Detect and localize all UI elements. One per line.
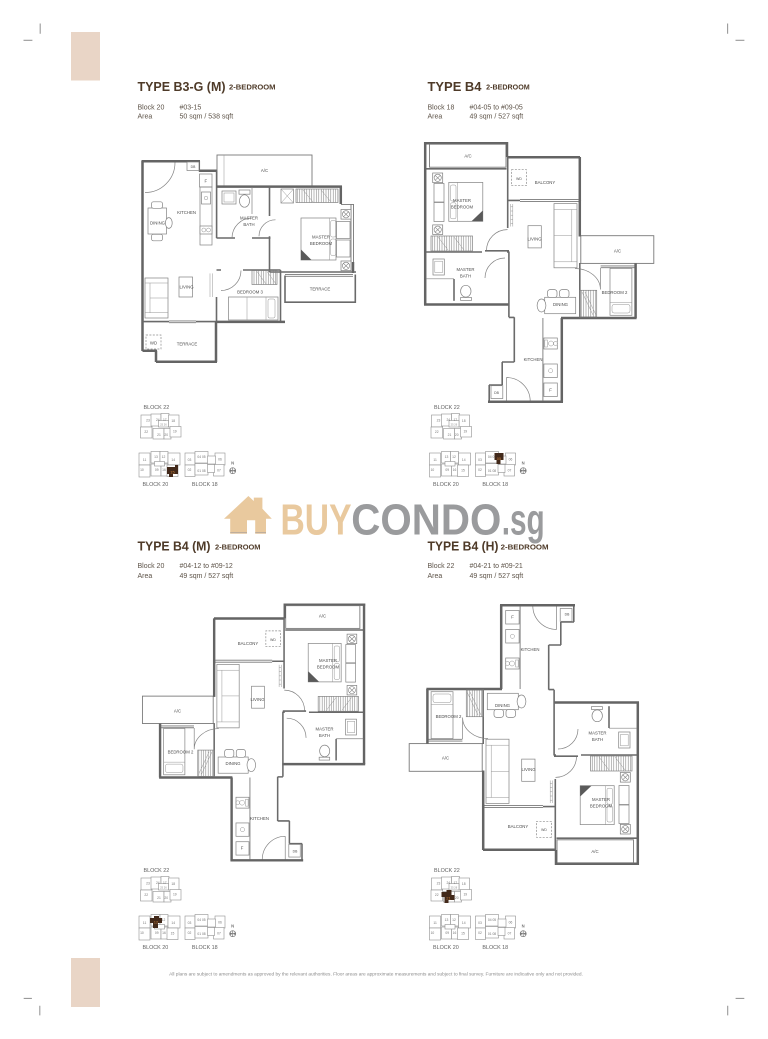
svg-text:LIVING: LIVING — [527, 237, 542, 242]
svg-text:BEDROOM: BEDROOM — [317, 665, 340, 670]
svg-text:BATH: BATH — [319, 733, 330, 738]
svg-text:MASTER: MASTER — [592, 797, 610, 802]
svg-text:MASTER: MASTER — [457, 267, 475, 272]
svg-text:.sg: .sg — [502, 495, 545, 544]
svg-text:BEDROOM: BEDROOM — [310, 241, 333, 246]
svg-text:WD: WD — [150, 341, 157, 346]
svg-text:DINING: DINING — [150, 221, 166, 226]
svg-text:TYPE B3-G (M): TYPE B3-G (M) — [138, 80, 226, 94]
svg-text:F: F — [511, 615, 514, 620]
svg-text:Block 22: Block 22 — [428, 563, 455, 570]
svg-text:BATH: BATH — [592, 737, 603, 742]
svg-text:21: 21 — [446, 896, 451, 901]
svg-text:Area: Area — [428, 114, 443, 121]
svg-text:BEDROOM: BEDROOM — [451, 205, 474, 210]
svg-text:#04-05 to #09-05: #04-05 to #09-05 — [470, 105, 523, 112]
svg-text:BEDROOM 2: BEDROOM 2 — [436, 714, 462, 719]
svg-text:Area: Area — [138, 573, 153, 580]
svg-text:LIVING: LIVING — [179, 285, 194, 290]
svg-text:15: 15 — [170, 470, 175, 475]
svg-text:DINING: DINING — [225, 761, 241, 766]
svg-text:TERRACE: TERRACE — [310, 287, 331, 292]
svg-text:LIVING: LIVING — [250, 697, 265, 702]
svg-text:KITCHEN: KITCHEN — [177, 210, 196, 215]
svg-text:KITCHEN: KITCHEN — [250, 816, 269, 821]
svg-text:DB: DB — [494, 391, 499, 395]
svg-text:TYPE B4: TYPE B4 — [428, 80, 482, 94]
svg-text:MASTER: MASTER — [312, 235, 330, 240]
svg-text:49 sqm / 527 sqft: 49 sqm / 527 sqft — [180, 573, 234, 580]
svg-text:A/C: A/C — [591, 849, 598, 854]
svg-text:BEDROOM 3: BEDROOM 3 — [237, 290, 263, 295]
svg-text:BEDROOM 2: BEDROOM 2 — [602, 290, 628, 295]
svg-text:A/C: A/C — [442, 756, 449, 761]
svg-text:A/C: A/C — [319, 614, 326, 619]
svg-text:#04-21 to #09-21: #04-21 to #09-21 — [470, 563, 523, 570]
svg-text:BALCONY: BALCONY — [238, 641, 259, 646]
svg-text:DINING: DINING — [553, 302, 569, 307]
svg-text:2-BEDROOM: 2-BEDROOM — [229, 84, 276, 91]
svg-text:DB: DB — [293, 850, 298, 854]
svg-text:DB: DB — [191, 165, 196, 169]
svg-text:A/C: A/C — [464, 154, 471, 159]
svg-text:WD: WD — [541, 828, 547, 832]
svg-text:#03-15: #03-15 — [180, 105, 202, 112]
svg-text:F: F — [204, 179, 207, 184]
svg-text:50 sqm / 538 sqft: 50 sqm / 538 sqft — [180, 114, 234, 121]
svg-text:A/C: A/C — [261, 168, 268, 173]
svg-text:2-BEDROOM: 2-BEDROOM — [501, 545, 549, 552]
svg-text:05: 05 — [497, 456, 502, 461]
svg-text:BALCONY: BALCONY — [508, 824, 529, 829]
svg-text:MASTER: MASTER — [319, 658, 337, 663]
svg-text:TYPE B4 (M): TYPE B4 (M) — [138, 540, 211, 554]
svg-text:WD: WD — [270, 638, 276, 642]
svg-text:2-BEDROOM: 2-BEDROOM — [215, 545, 261, 552]
svg-text:BATH: BATH — [460, 274, 471, 279]
svg-text:F: F — [549, 388, 552, 393]
svg-text:A/C: A/C — [614, 249, 621, 254]
svg-text:WD: WD — [516, 177, 522, 181]
svg-text:Area: Area — [138, 114, 153, 121]
svg-text:MASTER: MASTER — [240, 216, 258, 221]
svg-text:KITCHEN: KITCHEN — [524, 357, 543, 362]
svg-text:49 sqm / 527 sqft: 49 sqm / 527 sqft — [470, 114, 524, 121]
svg-text:Block 20: Block 20 — [138, 563, 165, 570]
svg-text:BUY: BUY — [281, 495, 352, 544]
svg-text:2-BEDROOM: 2-BEDROOM — [486, 84, 530, 91]
svg-text:12: 12 — [154, 920, 159, 925]
svg-text:Block 20: Block 20 — [138, 105, 165, 112]
svg-text:DINING: DINING — [495, 703, 511, 708]
svg-text:A/C: A/C — [174, 709, 181, 714]
svg-text:TERRACE: TERRACE — [177, 342, 198, 347]
svg-text:MASTER: MASTER — [589, 731, 607, 736]
svg-text:BEDROOM 2: BEDROOM 2 — [168, 750, 194, 755]
svg-text:CONDO: CONDO — [351, 495, 501, 544]
svg-text:LIVING: LIVING — [521, 767, 536, 772]
svg-text:49 sqm / 527 sqft: 49 sqm / 527 sqft — [470, 573, 524, 580]
svg-text:Block 18: Block 18 — [428, 105, 455, 112]
svg-text:Area: Area — [428, 573, 443, 580]
svg-text:BALCONY: BALCONY — [535, 180, 556, 185]
svg-text:All plans are subject to amend: All plans are subject to amendments as a… — [169, 972, 583, 978]
svg-text:#04-12 to #09-12: #04-12 to #09-12 — [180, 563, 233, 570]
svg-text:BEDROOM: BEDROOM — [590, 804, 613, 809]
svg-text:BATH: BATH — [243, 222, 254, 227]
svg-text:KITCHEN: KITCHEN — [521, 647, 540, 652]
svg-text:MASTER: MASTER — [453, 198, 471, 203]
svg-text:F: F — [241, 846, 244, 851]
svg-text:DB: DB — [565, 613, 570, 617]
svg-text:MASTER: MASTER — [316, 727, 334, 732]
